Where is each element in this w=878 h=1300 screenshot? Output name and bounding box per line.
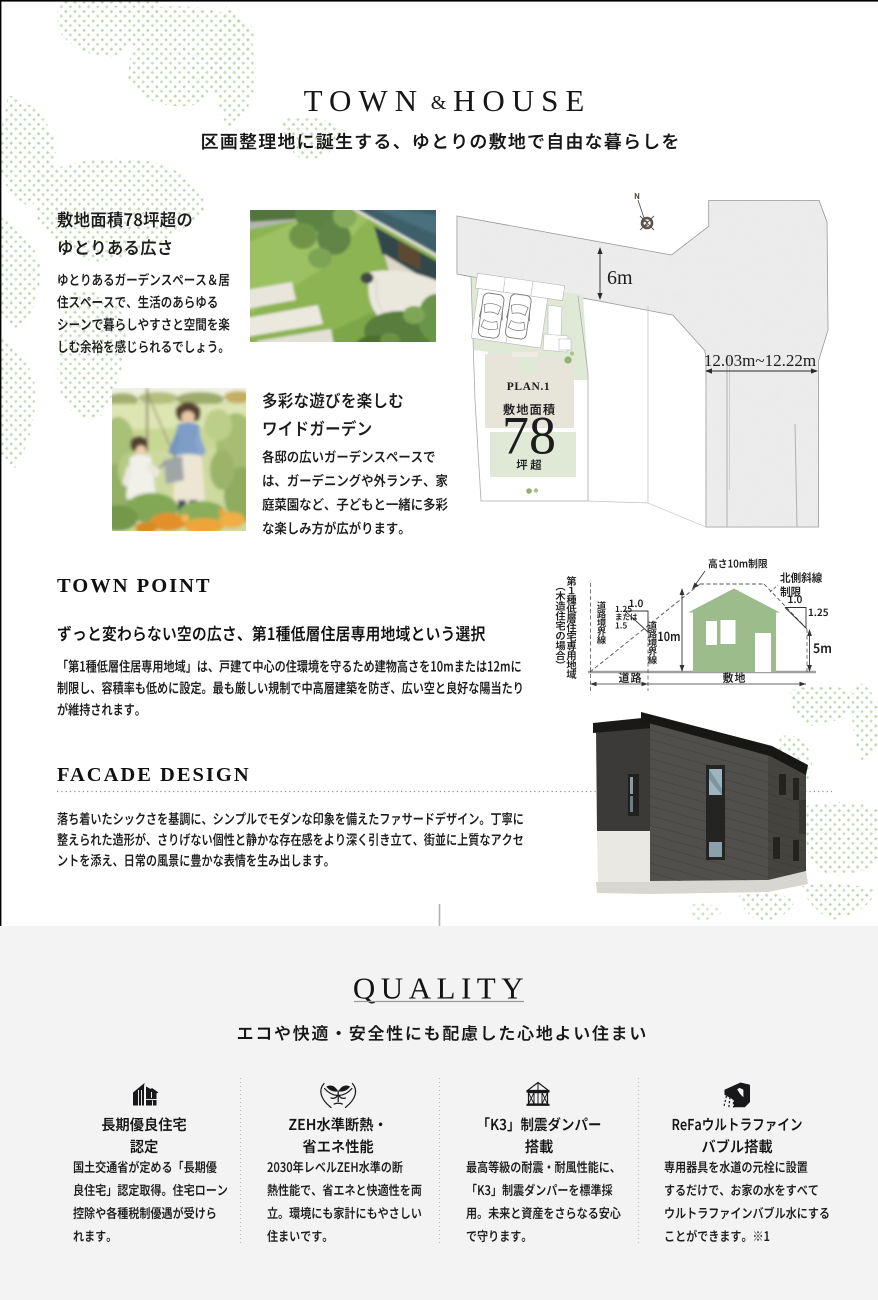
svg-text:QUALITY: QUALITY (353, 971, 529, 1006)
svg-text:&: & (431, 92, 447, 114)
svg-text:TOWN POINT: TOWN POINT (57, 575, 212, 597)
svg-text:6m: 6m (607, 267, 633, 289)
svg-text:78: 78 (502, 406, 556, 466)
svg-text:FACADE DESIGN: FACADE DESIGN (57, 764, 251, 786)
svg-text:HOUSE: HOUSE (453, 83, 591, 118)
svg-text:12.03m~12.22m: 12.03m~12.22m (704, 351, 816, 370)
svg-text:TOWN: TOWN (304, 83, 424, 118)
svg-text:PLAN.1: PLAN.1 (507, 381, 551, 393)
